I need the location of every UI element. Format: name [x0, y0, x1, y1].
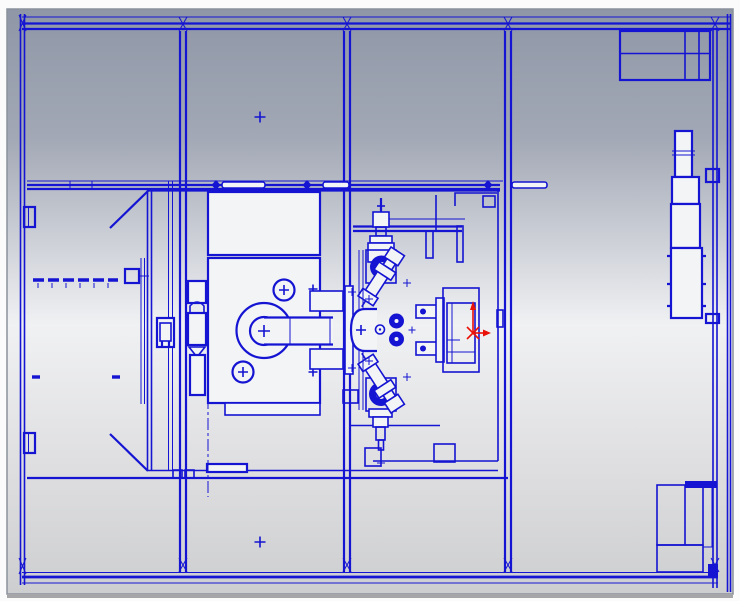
- drawing-canvas[interactable]: [0, 0, 740, 601]
- viewport-bottom-shadow: [7, 594, 733, 598]
- carriage-slide[interactable]: [208, 192, 320, 255]
- bed-slot: [512, 182, 547, 188]
- headstock-spindle[interactable]: [208, 258, 333, 415]
- bed-slot: [222, 182, 265, 188]
- cad-window: [0, 0, 740, 601]
- bed-slot: [323, 182, 349, 188]
